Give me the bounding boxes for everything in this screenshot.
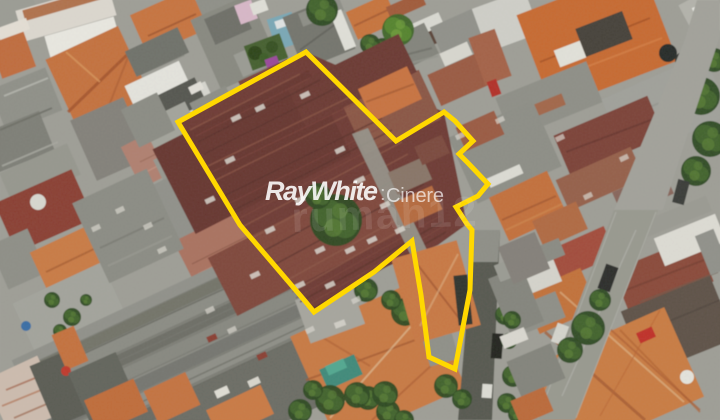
svg-text:RayWhite: RayWhite xyxy=(265,176,378,206)
svg-text:Cinere: Cinere xyxy=(386,185,444,207)
svg-text::: : xyxy=(380,183,386,205)
